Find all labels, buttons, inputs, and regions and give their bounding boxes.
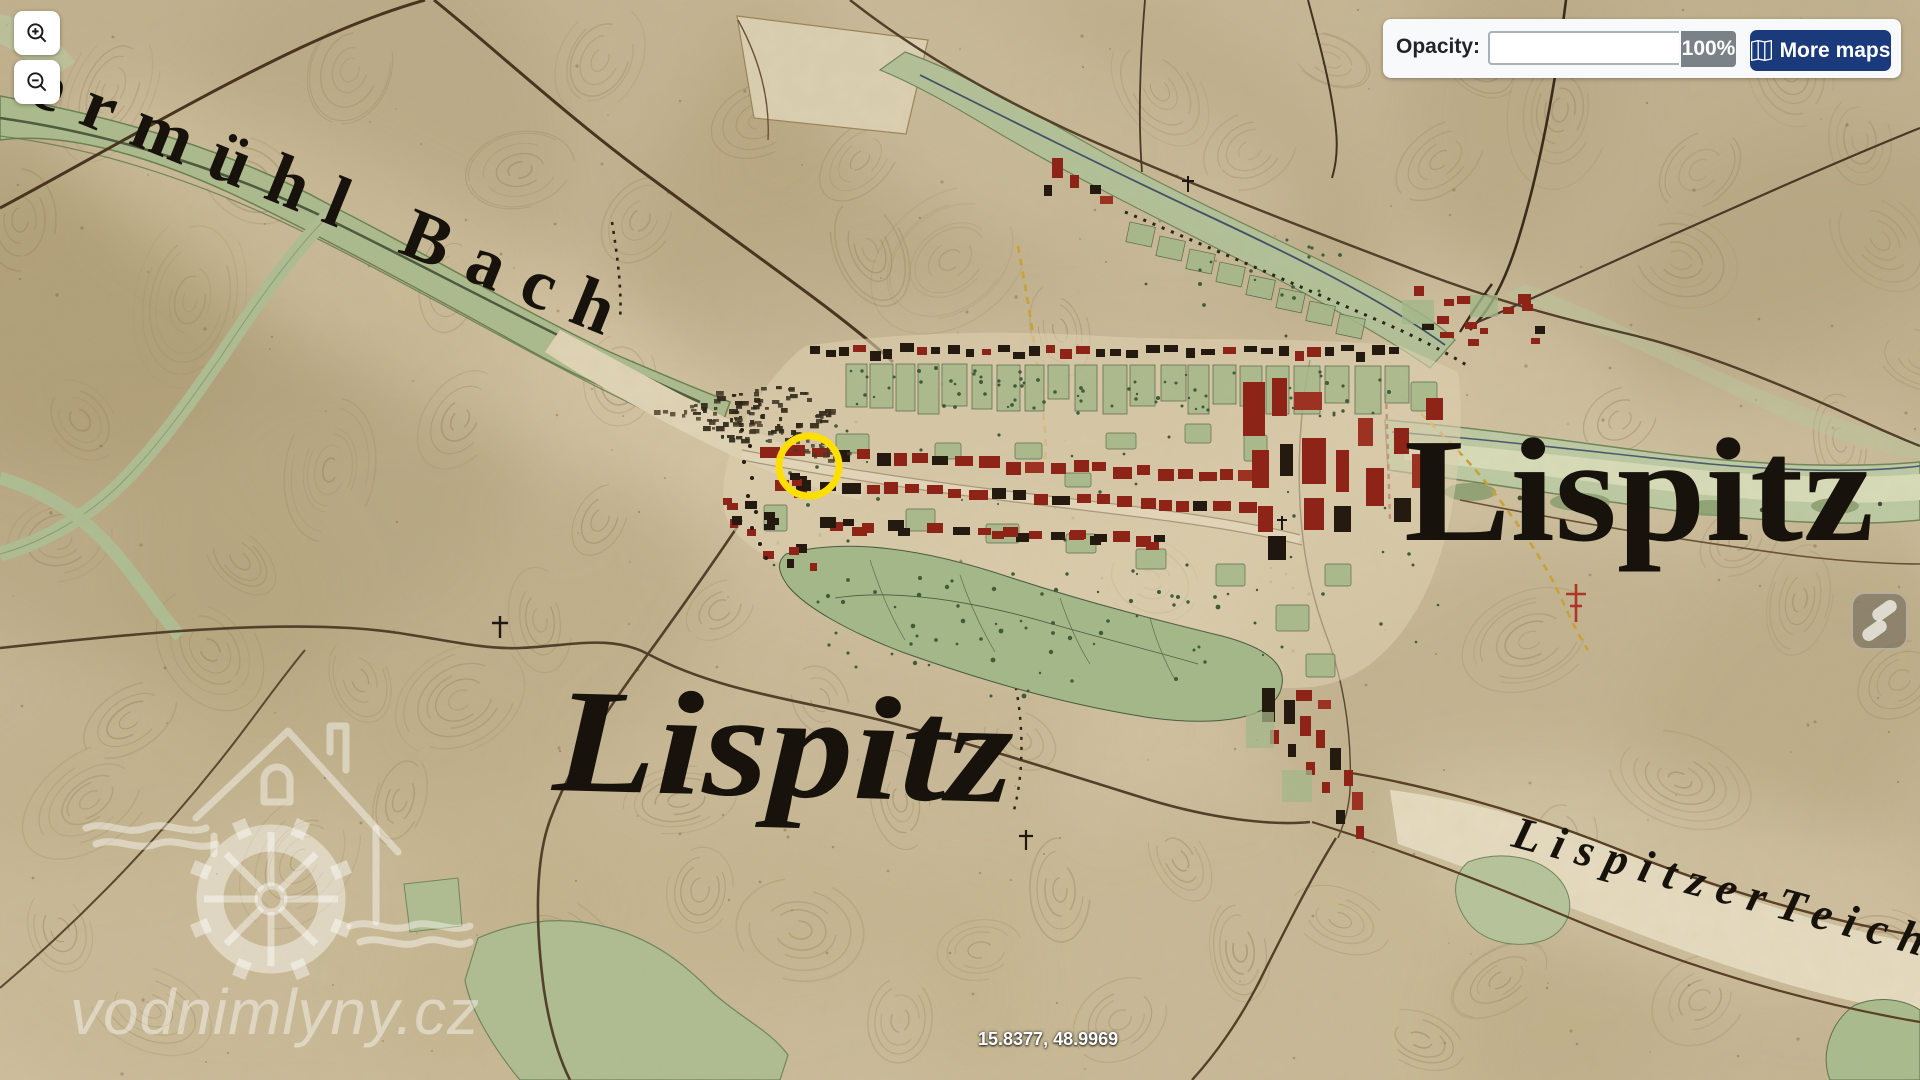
svg-text:Lispitz: Lispitz: [1404, 409, 1874, 573]
svg-text:vodnimlyny.cz: vodnimlyny.cz: [70, 976, 480, 1048]
svg-text:Lispitz: Lispitz: [549, 659, 1016, 835]
